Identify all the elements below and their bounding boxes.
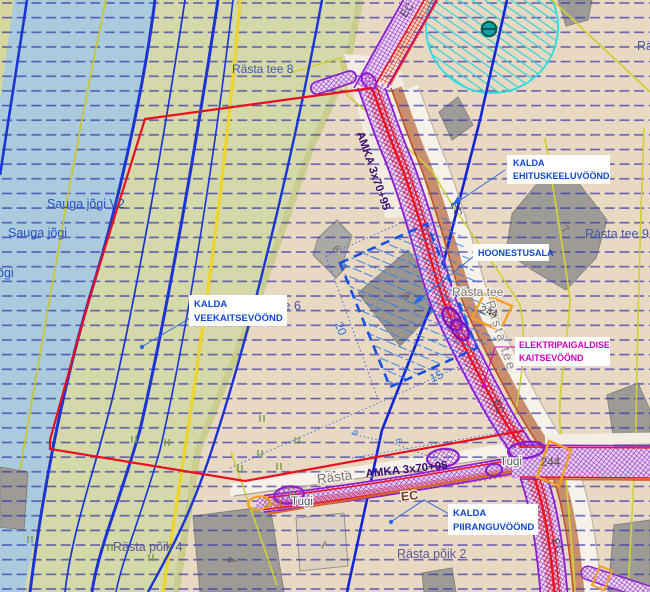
svg-text:Rästa tee: Rästa tee — [452, 285, 504, 299]
svg-text:VEEKAITSEVÖÖND: VEEKAITSEVÖÖND — [194, 313, 283, 324]
svg-text:Rästa põik 4: Rästa põik 4 — [113, 540, 183, 554]
svg-text:EHITUSKEELUVÖÖND: EHITUSKEELUVÖÖND — [513, 171, 610, 181]
svg-text:Rästa tee 9: Rästa tee 9 — [585, 227, 649, 241]
svg-text:KALDA: KALDA — [453, 508, 486, 519]
svg-text:HOONESTUSALA: HOONESTUSALA — [478, 248, 554, 258]
svg-text:ELEKTRIPAIGALDISE: ELEKTRIPAIGALDISE — [519, 340, 610, 350]
svg-text:Rästa tee 8: Rästa tee 8 — [232, 62, 294, 76]
svg-text:Tugi: Tugi — [291, 496, 313, 508]
svg-text:244: 244 — [264, 498, 282, 510]
svg-text:Sauga jõgi V2: Sauga jõgi V2 — [47, 197, 125, 211]
svg-text:KAITSEVÖÖND: KAITSEVÖÖND — [519, 353, 584, 363]
svg-text:Rästa: Rästa — [637, 39, 650, 53]
svg-text:PIIRANGUVÖÖND: PIIRANGUVÖÖND — [453, 522, 534, 533]
svg-text:EC: EC — [400, 488, 419, 504]
svg-text:4: 4 — [224, 556, 238, 563]
svg-text:õgi: õgi — [0, 266, 14, 280]
svg-text:KALDA: KALDA — [513, 158, 545, 168]
svg-text:Tugi: Tugi — [500, 456, 522, 468]
svg-text:Sauga jõgi: Sauga jõgi — [8, 226, 67, 240]
svg-text:244: 244 — [541, 457, 561, 469]
svg-text:Rästa põik 2: Rästa põik 2 — [397, 547, 467, 561]
svg-text:KALDA: KALDA — [194, 299, 227, 310]
